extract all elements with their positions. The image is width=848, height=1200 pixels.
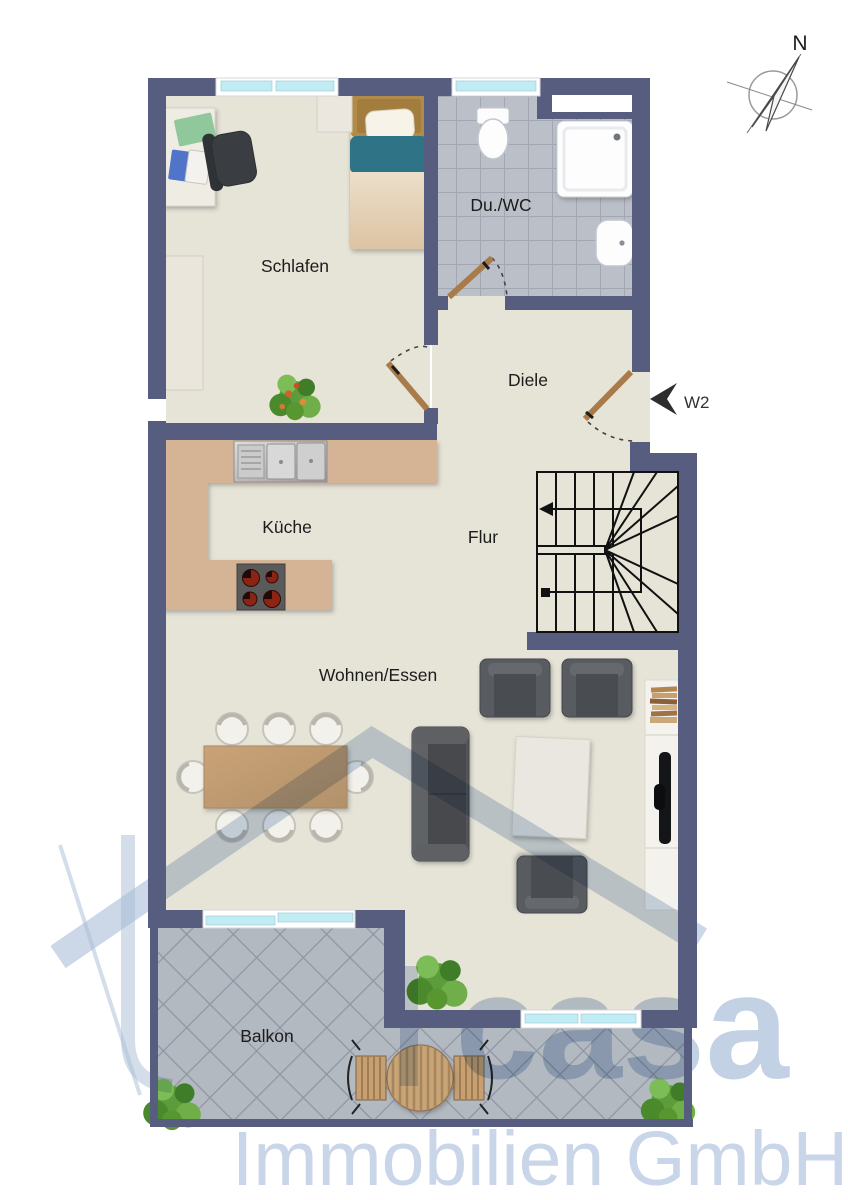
label-flur: Flur [468, 527, 498, 547]
window-bedroom [216, 78, 338, 96]
window-living-south [521, 1010, 641, 1028]
label-diele: Diele [508, 370, 548, 390]
cooktop [237, 564, 285, 610]
armchair-1 [480, 659, 550, 717]
watermark-company-text: Immobilien GmbH [232, 1116, 848, 1200]
compass-north-label: N [792, 32, 807, 55]
window-living-balcony [203, 910, 355, 928]
wall-niche-left [148, 399, 166, 421]
armchair-2 [562, 659, 632, 717]
compass-icon: N [727, 32, 812, 133]
double-bed [350, 94, 428, 249]
entrance-arrow-icon [650, 383, 677, 415]
balcony-railing-right [684, 1028, 692, 1127]
label-schlafen: Schlafen [261, 256, 329, 276]
toilet [477, 108, 509, 159]
entrance-marker: W2 [650, 383, 710, 415]
label-balkon: Balkon [240, 1026, 294, 1046]
wall-niche-top-right [552, 95, 632, 112]
label-w2: W2 [684, 393, 710, 412]
bookshelf [645, 680, 679, 910]
balcony-railing-left [150, 928, 158, 1127]
floorplan-page: casa Immobilien GmbH [0, 0, 848, 1200]
window-bath [452, 78, 540, 96]
round-garden-table [387, 1045, 453, 1111]
wardrobe [162, 256, 203, 390]
shower [557, 121, 633, 197]
label-kueche: Küche [262, 517, 312, 537]
label-wohnen-essen: Wohnen/Essen [319, 665, 437, 685]
office-chair [201, 127, 258, 192]
nightstand [317, 94, 352, 132]
kitchen-sink [234, 441, 327, 482]
balcony-railing-bottom [150, 1119, 693, 1127]
label-du-wc: Du./WC [470, 195, 531, 215]
washbasin [596, 220, 633, 266]
floorplan-canvas: casa Immobilien GmbH [0, 0, 848, 1200]
